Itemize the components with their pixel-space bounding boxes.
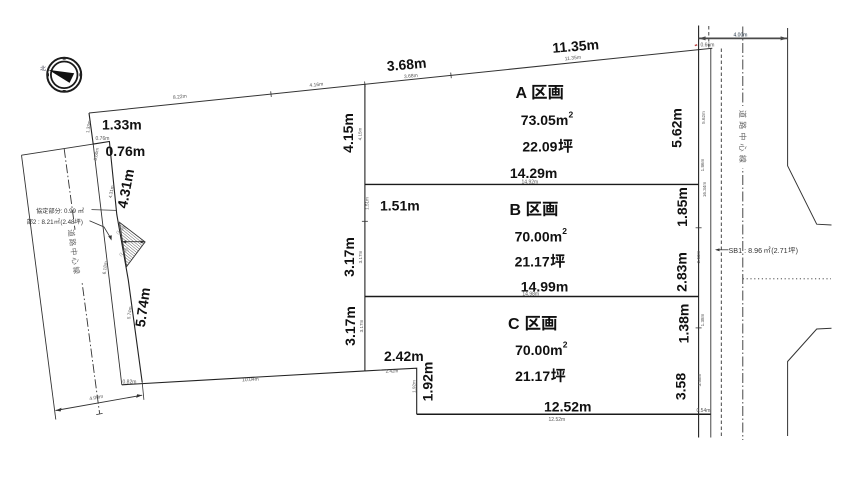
svg-text:1.33m: 1.33m — [102, 117, 142, 133]
svg-text:0.54m: 0.54m — [697, 408, 711, 414]
svg-text:0.76m: 0.76m — [106, 143, 146, 159]
svg-text:2: 2 — [563, 340, 568, 350]
svg-text:1.38m: 1.38m — [700, 313, 705, 326]
svg-text:12.52m: 12.52m — [549, 417, 566, 423]
svg-text:1.92m: 1.92m — [412, 380, 417, 393]
svg-text:3.17m: 3.17m — [341, 237, 357, 277]
svg-text:3.17m: 3.17m — [342, 306, 358, 346]
svg-text:): ) — [796, 246, 798, 255]
svg-text:4.00m: 4.00m — [734, 33, 748, 39]
svg-text:5.62m: 5.62m — [669, 108, 685, 148]
svg-text:0.66m: 0.66m — [701, 43, 715, 49]
svg-text:16.34m: 16.34m — [702, 182, 707, 197]
svg-text:): ) — [81, 219, 83, 226]
svg-text:2.83m: 2.83m — [674, 252, 690, 292]
svg-text:4.15m: 4.15m — [340, 113, 356, 153]
svg-text:0.82m: 0.82m — [123, 380, 137, 386]
svg-text:70.00m: 70.00m — [515, 228, 562, 244]
svg-text:21.17: 21.17 — [515, 368, 550, 384]
svg-text:4.15m: 4.15m — [358, 127, 363, 140]
svg-text:B: B — [510, 202, 522, 219]
svg-text:1.85m: 1.85m — [674, 187, 690, 227]
svg-text:1.86m: 1.86m — [700, 158, 705, 171]
svg-text:3.17m: 3.17m — [359, 319, 364, 332]
svg-text:5.62m: 5.62m — [701, 111, 706, 124]
svg-text:2: 2 — [569, 110, 574, 120]
svg-text:2.42m: 2.42m — [384, 348, 424, 364]
svg-text:3.58: 3.58 — [673, 373, 689, 400]
svg-text:2 : 8.21: 2 : 8.21 — [33, 219, 54, 226]
svg-text:1.51m: 1.51m — [364, 197, 369, 210]
svg-text:2.42m: 2.42m — [385, 368, 398, 374]
svg-text:70.00m: 70.00m — [515, 342, 562, 358]
svg-text:1.51m: 1.51m — [380, 198, 420, 214]
svg-text:(2.48: (2.48 — [60, 219, 75, 226]
svg-text:21.17: 21.17 — [515, 253, 550, 269]
svg-text:14.92m: 14.92m — [522, 180, 539, 186]
svg-text:22.09: 22.09 — [522, 138, 557, 154]
svg-text:3.17m: 3.17m — [358, 250, 363, 263]
svg-text:3.58m: 3.58m — [697, 373, 702, 386]
svg-text:C: C — [508, 316, 520, 333]
svg-text:73.05m: 73.05m — [521, 112, 568, 128]
svg-text:: 0.99: : 0.99 — [61, 208, 77, 215]
svg-text:(2.71: (2.71 — [771, 246, 787, 255]
svg-text:14.98m: 14.98m — [522, 291, 539, 297]
svg-text:14.29m: 14.29m — [510, 165, 557, 181]
svg-text:2.63m: 2.63m — [696, 250, 701, 263]
svg-text:1.92m: 1.92m — [420, 362, 436, 402]
svg-text:A: A — [516, 85, 528, 102]
svg-text:12.52m: 12.52m — [544, 399, 591, 415]
svg-text:0.76m: 0.76m — [96, 136, 110, 142]
svg-text:10.04m: 10.04m — [242, 377, 259, 384]
svg-text:1.38m: 1.38m — [676, 304, 692, 344]
svg-text:SB1 : 8.96: SB1 : 8.96 — [729, 246, 763, 255]
svg-text:2: 2 — [562, 226, 567, 236]
